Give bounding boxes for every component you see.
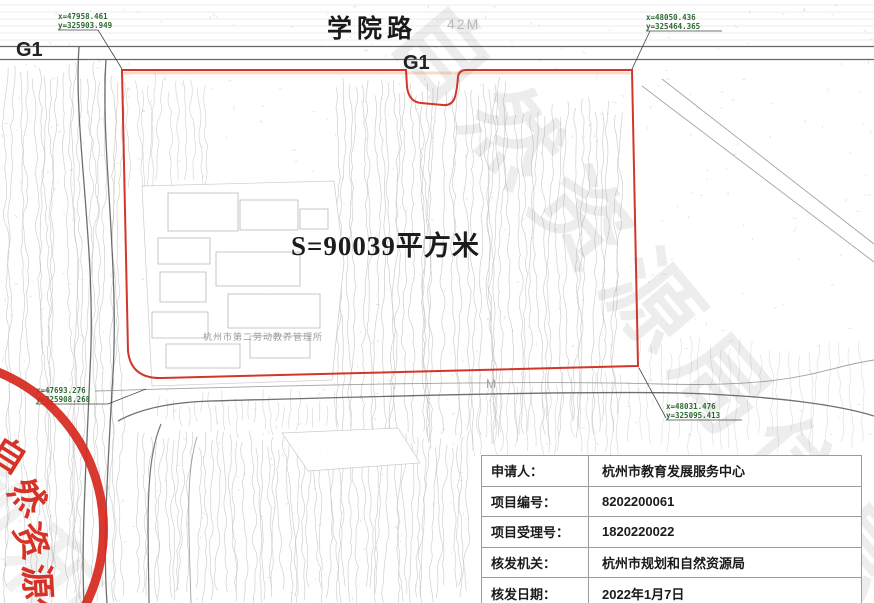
- coordinate-label-bottom-right: x=48031.476 y=325095.413: [666, 403, 720, 420]
- info-value: 杭州市规划和自然资源局: [589, 547, 862, 578]
- cadastral-map-page: 自然资源局信息中心 规划和自然资源 学院路 42M M G1 G1 S=9003…: [0, 0, 874, 603]
- seal-character: 源: [13, 562, 66, 600]
- road-width-label-bottom: M: [486, 377, 496, 391]
- info-label: 核发日期：: [482, 578, 589, 603]
- coordinate-label-top-right: x=48050.436 y=325464.365: [646, 14, 700, 31]
- info-value: 8202200061: [589, 486, 862, 517]
- coordinate-y: y=325903.949: [58, 22, 112, 31]
- info-label: 申请人：: [482, 456, 589, 487]
- info-row: 核发日期：2022年1月7日: [482, 578, 862, 603]
- coordinate-y: y=325464.365: [646, 23, 700, 32]
- zone-label-g1-left: G1: [16, 39, 43, 62]
- info-row: 项目编号：8202200061: [482, 486, 862, 517]
- info-row: 核发机关：杭州市规划和自然资源局: [482, 547, 862, 578]
- info-value: 2022年1月7日: [589, 578, 862, 603]
- road-name-label: 学院路: [327, 9, 417, 45]
- info-label: 项目受理号：: [482, 517, 589, 548]
- coordinate-label-top-left: x=47958.461 y=325903.949: [58, 13, 112, 30]
- info-table-body: 申请人：杭州市教育发展服务中心项目编号：8202200061项目受理号：1820…: [482, 456, 862, 603]
- info-value: 1820220022: [589, 517, 862, 548]
- road-width-label: 42M: [447, 16, 480, 32]
- info-value: 杭州市教育发展服务中心: [589, 456, 862, 487]
- info-row: 项目受理号：1820220022: [482, 517, 862, 548]
- facility-name-label: 杭州市第二劳动教养管理所: [203, 330, 323, 343]
- info-table: 申请人：杭州市教育发展服务中心项目编号：8202200061项目受理号：1820…: [481, 455, 862, 603]
- info-label: 核发机关：: [482, 547, 589, 578]
- coordinate-y: y=325095.413: [666, 412, 720, 421]
- parcel-area-label: S=90039平方米: [291, 224, 480, 263]
- info-row: 申请人：杭州市教育发展服务中心: [482, 456, 862, 487]
- info-label: 项目编号：: [482, 486, 589, 517]
- zone-label-g1-center: G1: [403, 52, 430, 75]
